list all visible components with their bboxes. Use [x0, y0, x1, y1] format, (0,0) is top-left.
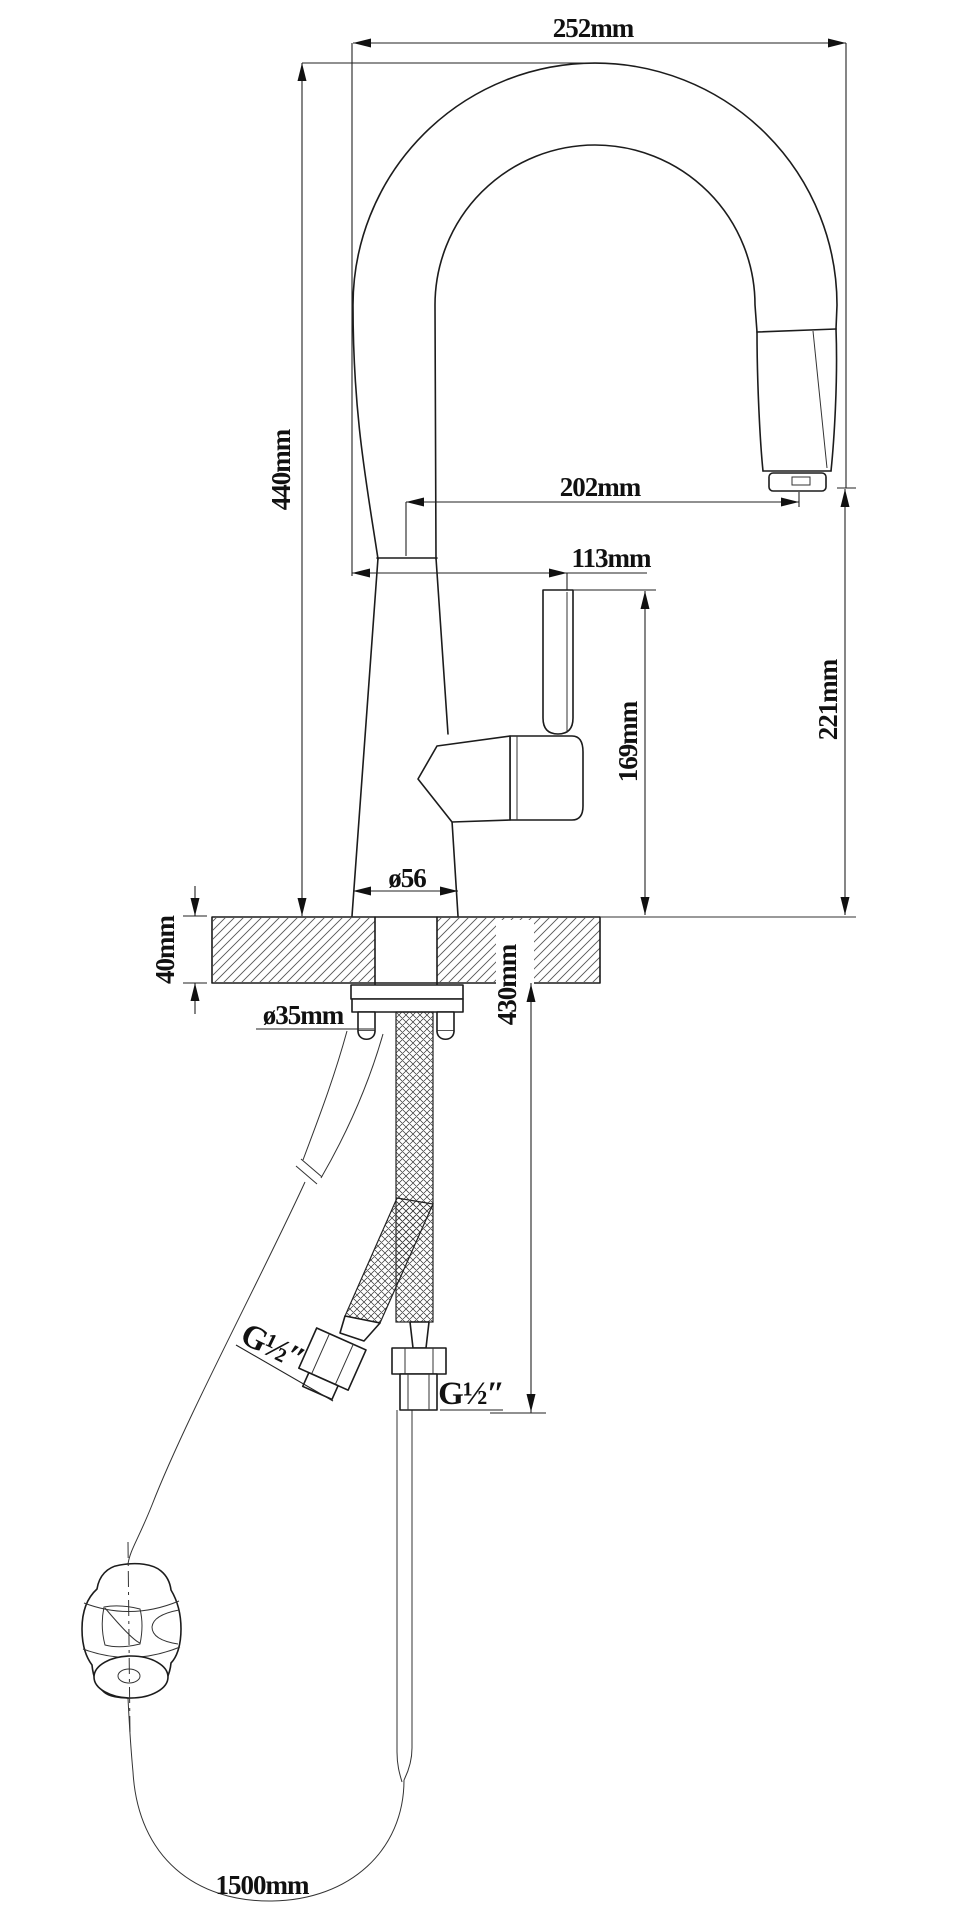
- dim-handle-reach: 113mm: [572, 543, 653, 573]
- thread-label-right: G½″: [438, 1376, 504, 1412]
- spray-head: [757, 329, 837, 491]
- dimension-169: 169mm: [573, 590, 656, 915]
- dim-hose-length: 1500mm: [216, 1870, 310, 1900]
- spray-hose: [128, 1031, 412, 1901]
- handle-lever: [418, 590, 583, 822]
- dimension-40: 40mm: [150, 886, 207, 1014]
- dimension-430: 430mm: [490, 920, 546, 1413]
- dim-counter-thickness: 40mm: [150, 915, 180, 984]
- dim-outlet-height: 221mm: [813, 658, 843, 740]
- drawing-sheet: 252mm 440mm 202mm 113mm 221mm 169mm ø56: [0, 0, 966, 1928]
- thread-size-right: G½″: [438, 1376, 504, 1412]
- dim-base-diameter: ø56: [388, 863, 426, 893]
- dim-spout-reach: 252mm: [553, 13, 635, 43]
- dim-hole-diameter: ø35mm: [263, 1000, 345, 1030]
- hose-length-label: 1500mm: [216, 1870, 310, 1900]
- dim-overall-height: 440mm: [266, 428, 296, 510]
- dimension-113: 113mm: [352, 543, 652, 590]
- dim-hose-drop: 430mm: [492, 943, 522, 1025]
- dim-outlet-reach: 202mm: [560, 472, 642, 502]
- dimension-221: 221mm: [813, 488, 856, 915]
- dimension-base-diameter: ø56: [353, 863, 458, 896]
- faucet-technical-drawing: 252mm 440mm 202mm 113mm 221mm 169mm ø56: [0, 0, 966, 1928]
- dim-handle-height: 169mm: [613, 700, 643, 782]
- hose-weight: [82, 1542, 181, 1737]
